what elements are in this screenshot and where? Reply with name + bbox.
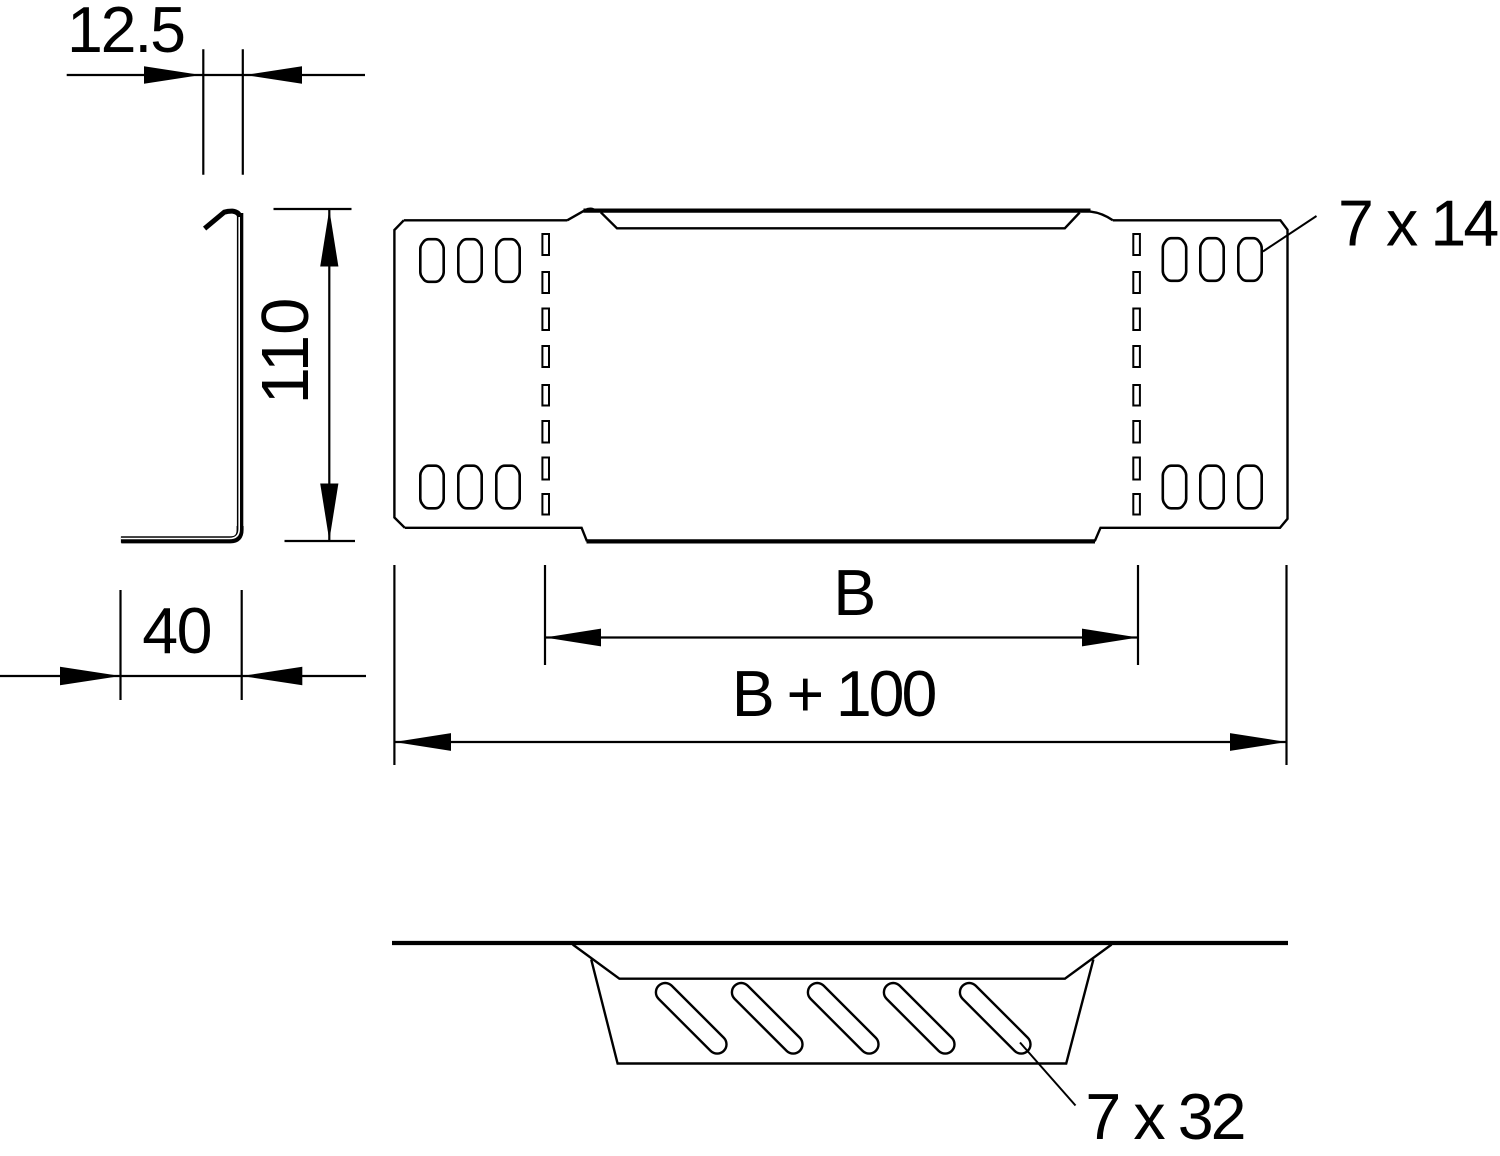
svg-text:110: 110 bbox=[248, 298, 323, 405]
svg-text:40: 40 bbox=[142, 595, 211, 667]
svg-text:7 x 14: 7 x 14 bbox=[1338, 188, 1497, 260]
svg-text:B + 100: B + 100 bbox=[732, 658, 936, 730]
svg-text:B: B bbox=[833, 557, 875, 629]
svg-text:12.5: 12.5 bbox=[67, 0, 184, 66]
svg-text:7 x 32: 7 x 32 bbox=[1085, 1081, 1243, 1153]
